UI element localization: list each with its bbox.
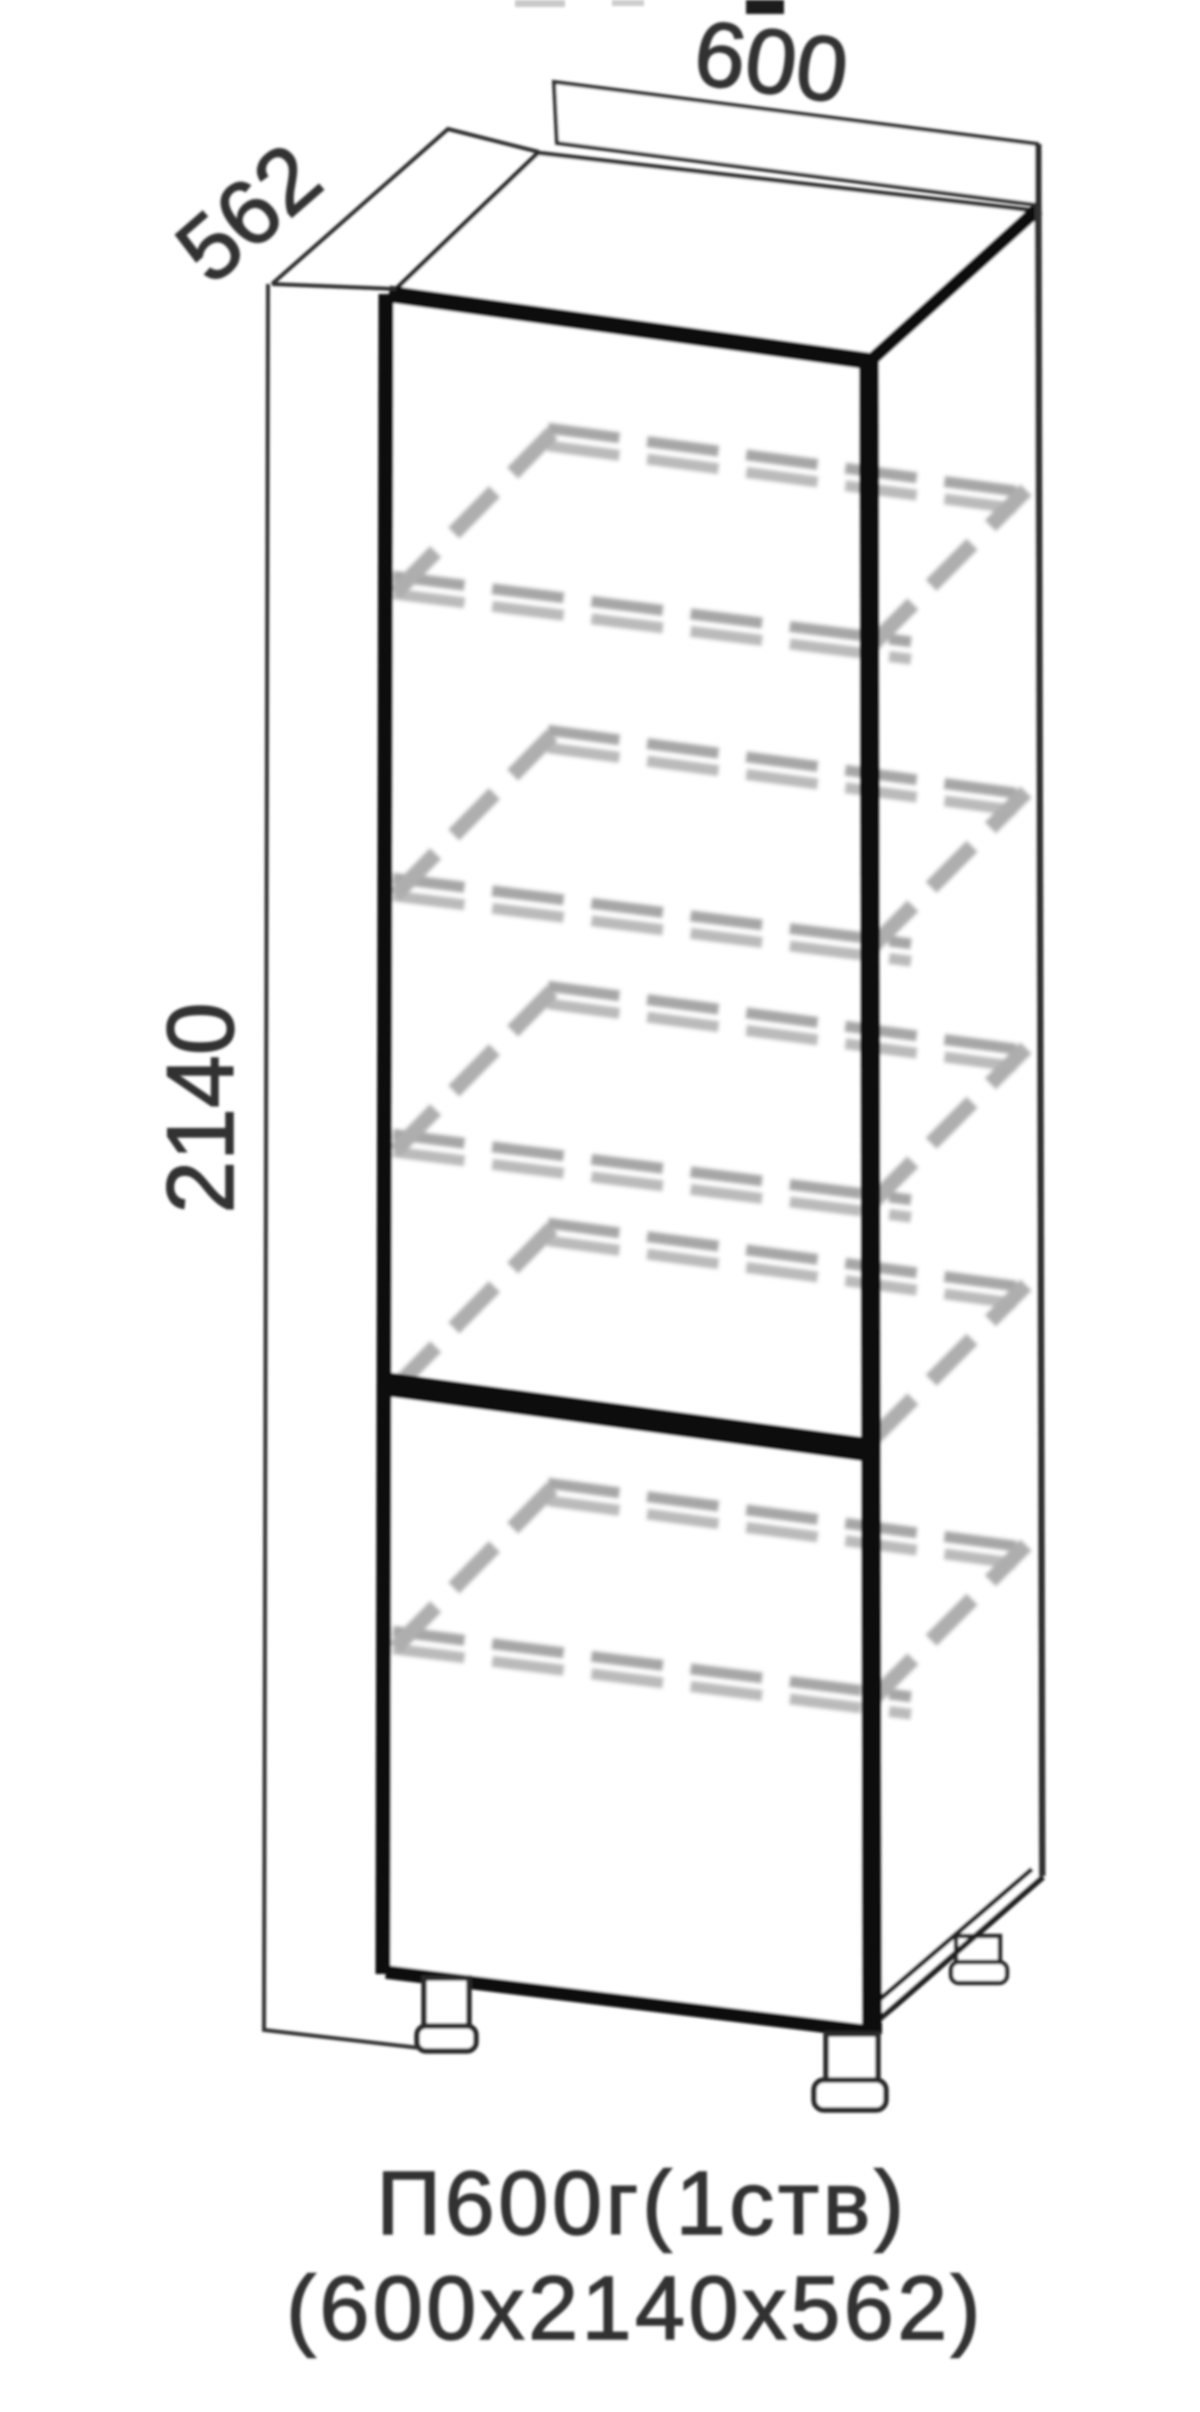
svg-text:(600х2140х562): (600х2140х562) [286,2259,984,2359]
svg-text:600: 600 [688,2,854,123]
svg-text:2140: 2140 [148,1002,254,1213]
svg-text:П600г(1ств): П600г(1ств) [376,2154,907,2254]
